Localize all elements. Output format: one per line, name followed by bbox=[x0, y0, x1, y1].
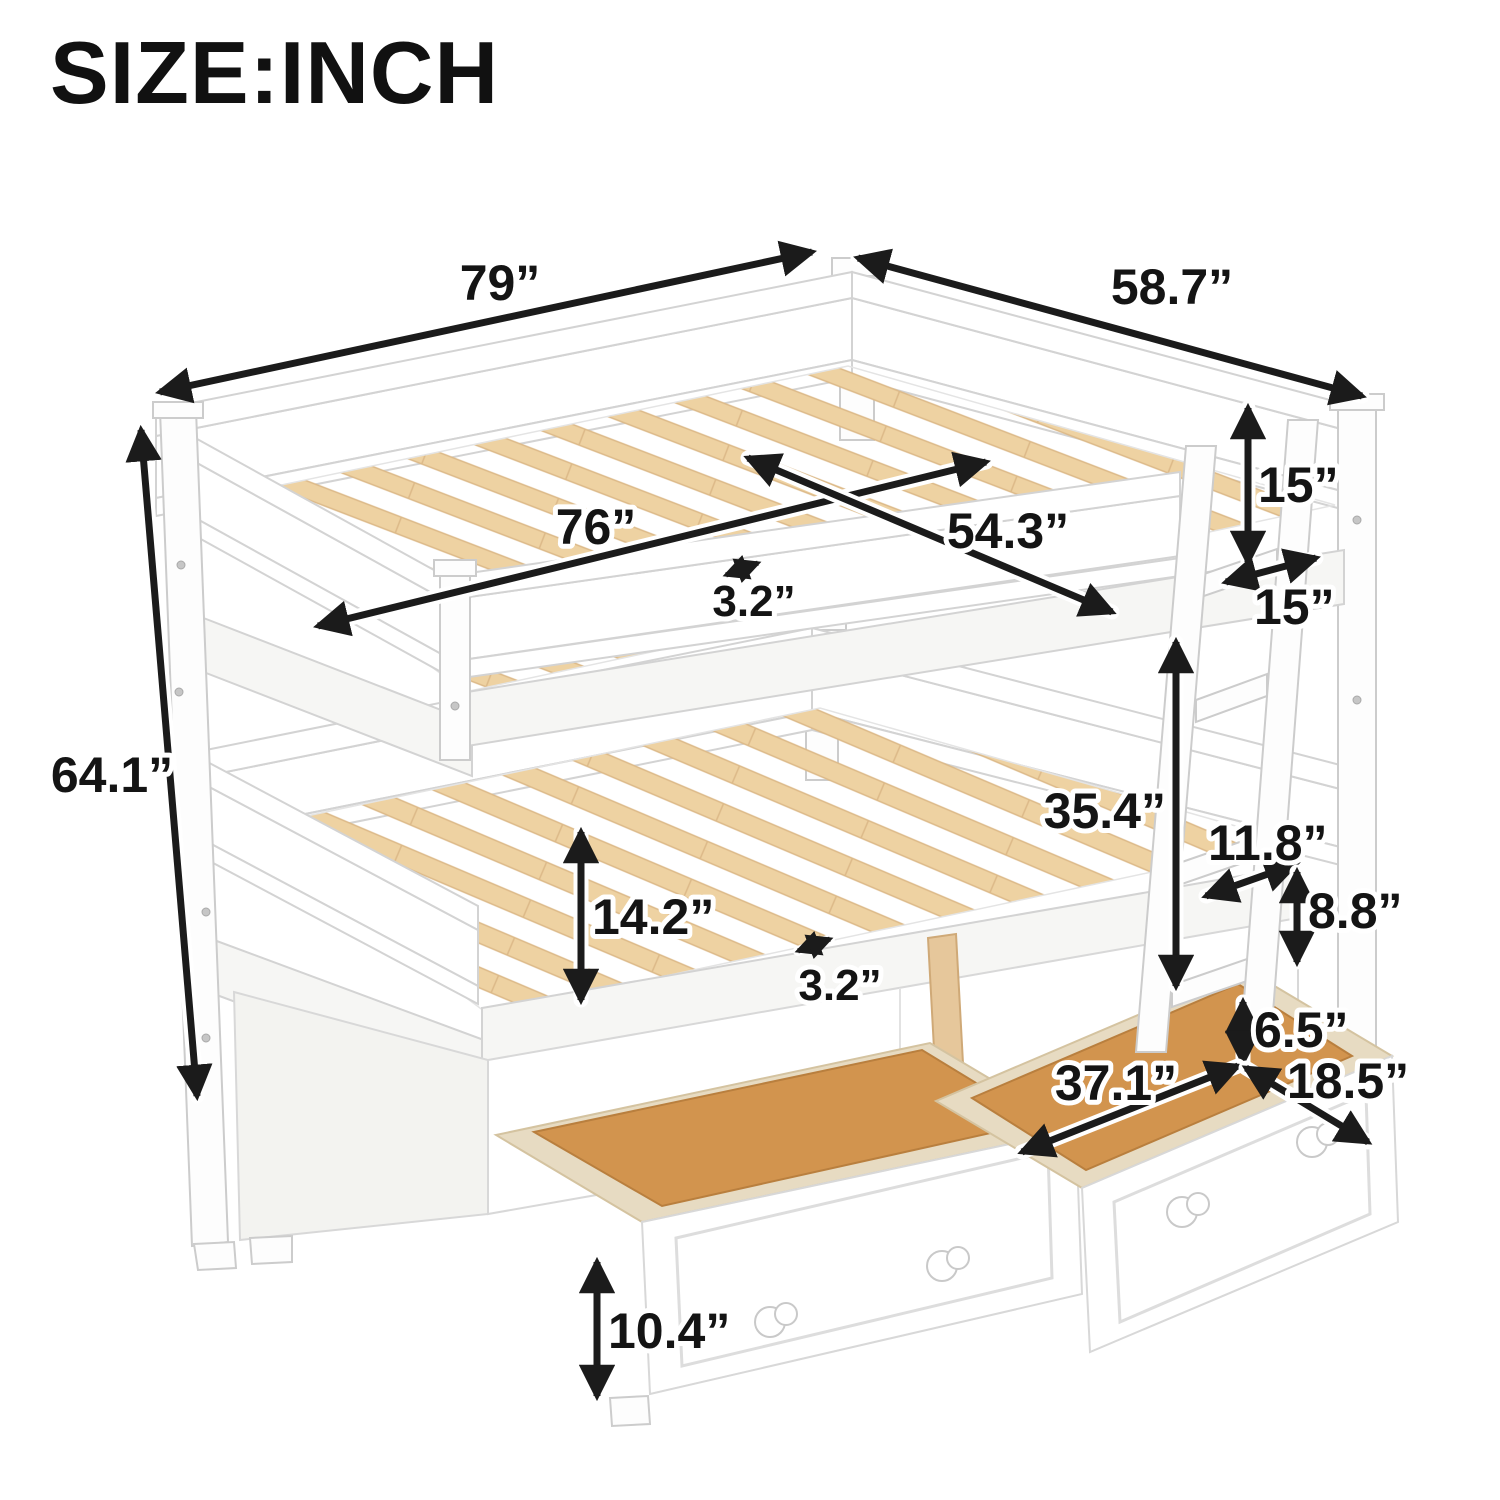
dim-drawer-width-label: 37.1” bbox=[1055, 1055, 1177, 1111]
dim-upper-slat-gap-label: 3.2” bbox=[712, 577, 795, 626]
dim-overall-depth-label: 58.7” bbox=[1111, 259, 1233, 315]
dim-ladder-bottom-rung-label: 8.8” bbox=[1308, 883, 1403, 939]
dim-lower-side-height-label: 14.2” bbox=[592, 889, 714, 945]
dim-bunk-clearance-label: 35.4” bbox=[1044, 783, 1166, 839]
bunk-bed-illustration: 79” 58.7” 64.1” 76” 54.3” 3.2” 15” 15” 3… bbox=[0, 0, 1500, 1500]
dim-slat-length-label: 76” bbox=[556, 499, 637, 555]
dim-drawer-height-label: 10.4” bbox=[608, 1303, 730, 1359]
dim-upper-inner-width-label: 54.3” bbox=[947, 503, 1069, 559]
drawer-left-foot bbox=[610, 1396, 650, 1426]
ladder-rung-2 bbox=[1196, 674, 1267, 722]
dim-overall-length-label: 79” bbox=[460, 255, 541, 311]
base-foot-left bbox=[250, 1236, 292, 1264]
dim-ladder-width-label: 15” bbox=[1254, 579, 1335, 635]
left-post-foot bbox=[194, 1242, 236, 1270]
dim-upper-rail-height-label: 15” bbox=[1258, 457, 1339, 513]
dim-under-bed-clearance-label: 6.5” bbox=[1254, 1002, 1349, 1058]
dim-drawer-depth-label: 18.5” bbox=[1287, 1053, 1409, 1109]
dim-overall-height-label: 64.1” bbox=[51, 747, 173, 803]
size-diagram-page: SIZE:INCH bbox=[0, 0, 1500, 1500]
dim-lower-slat-gap-label: 3.2” bbox=[798, 961, 881, 1010]
dim-ladder-rung-spacing-label: 11.8” bbox=[1208, 815, 1328, 871]
